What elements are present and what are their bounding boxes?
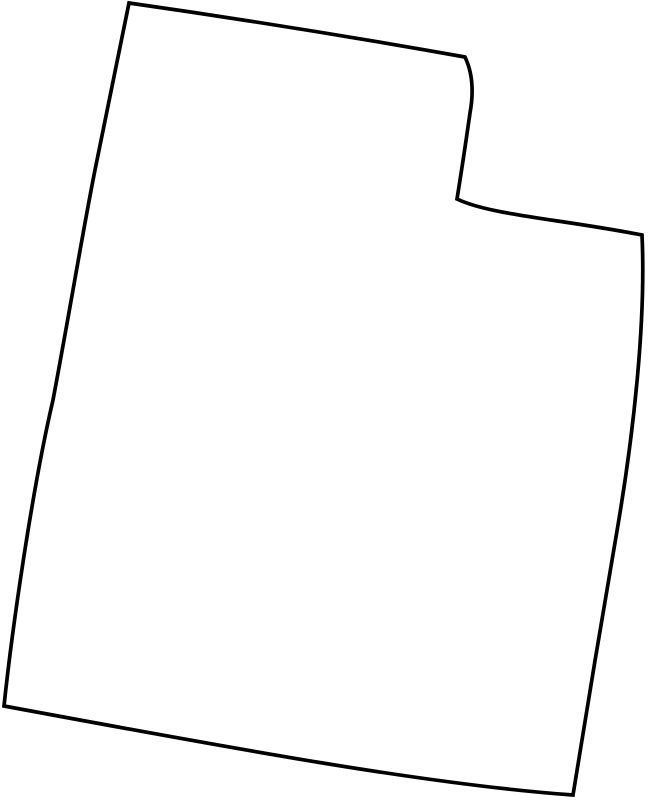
utah-outline-map — [0, 0, 649, 800]
map-svg — [0, 0, 649, 800]
map-canvas — [0, 0, 649, 800]
utah-state-border — [4, 3, 643, 795]
